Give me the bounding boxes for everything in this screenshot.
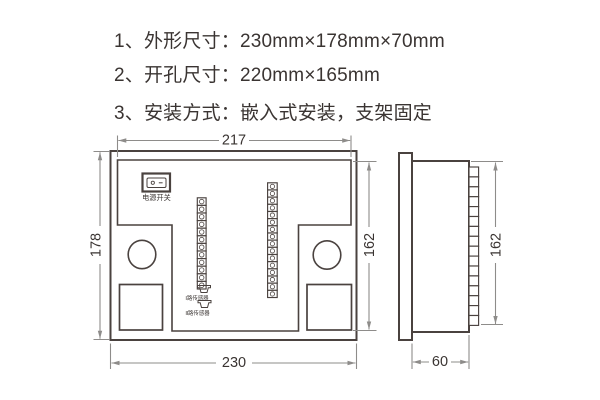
terminal-strip-left xyxy=(197,198,206,289)
terminal-cell xyxy=(469,286,479,296)
cutout-left xyxy=(120,285,163,331)
arrow-right-icon xyxy=(342,138,350,142)
dim-side-depth-60: 60 xyxy=(412,335,469,370)
power-switch-rocker xyxy=(147,178,166,188)
sensor2-label: Ⅱ路传感器 xyxy=(185,309,210,317)
arrow-up-icon xyxy=(98,152,102,160)
arrow-left-icon xyxy=(118,138,126,142)
terminal-strip-side xyxy=(469,167,479,325)
terminal-cell xyxy=(469,226,479,236)
terminal-cell xyxy=(469,197,479,207)
side-front-bezel xyxy=(399,153,412,340)
arrow-left-icon xyxy=(413,360,421,364)
arrow-down-icon xyxy=(98,331,102,339)
terminal-strip-right xyxy=(268,183,278,298)
terminal-cell xyxy=(469,306,479,316)
installation-dimension-page: 1、外形尺寸：230mm×178mm×70mm 2、开孔尺寸：220mm×165… xyxy=(0,0,600,400)
dim-label-162-side: 162 xyxy=(489,233,505,257)
dim-label-178: 178 xyxy=(89,233,105,257)
terminal-cell xyxy=(469,296,479,306)
arrow-down-icon xyxy=(367,322,371,330)
dim-inner-width-217: 217 xyxy=(118,133,352,158)
terminal-cell xyxy=(469,276,479,286)
terminal-cell xyxy=(469,256,479,266)
terminal-cell xyxy=(469,266,479,276)
terminal-cell xyxy=(469,187,479,197)
arrow-right-icon xyxy=(348,361,356,365)
arrow-down-icon xyxy=(493,316,497,324)
cutout-right xyxy=(307,285,352,331)
rear-view-drawing: 电源开关 Ⅰ路传感器 Ⅱ路传感器 xyxy=(111,151,357,340)
dimension-drawing: 电源开关 Ⅰ路传感器 Ⅱ路传感器 217 xyxy=(0,0,600,400)
terminal-cell xyxy=(469,207,479,217)
side-body xyxy=(412,161,469,332)
arrow-up-icon xyxy=(367,163,371,171)
terminal-cell xyxy=(469,217,479,227)
power-switch-label: 电源开关 xyxy=(142,193,171,202)
arrow-left-icon xyxy=(112,361,120,365)
dim-label-230: 230 xyxy=(222,355,246,371)
mounting-hole-right xyxy=(313,241,341,269)
arrow-right-icon xyxy=(460,360,468,364)
dim-outer-height-178: 178 xyxy=(89,152,111,340)
terminal-cell xyxy=(469,236,479,246)
power-switch-icon xyxy=(143,174,171,192)
switch-off-symbol-icon xyxy=(151,181,154,184)
terminal-cell xyxy=(469,167,479,177)
dim-label-60: 60 xyxy=(432,354,448,370)
dim-outer-width-230: 230 xyxy=(111,344,357,372)
side-view-drawing xyxy=(399,153,479,340)
mounting-hole-left xyxy=(128,240,156,268)
terminal-cell xyxy=(469,316,479,326)
dim-label-217: 217 xyxy=(222,133,246,149)
arrow-up-icon xyxy=(493,163,497,171)
terminal-cell xyxy=(469,246,479,256)
terminal-cell xyxy=(469,177,479,187)
dim-label-162-rear: 162 xyxy=(362,233,378,257)
